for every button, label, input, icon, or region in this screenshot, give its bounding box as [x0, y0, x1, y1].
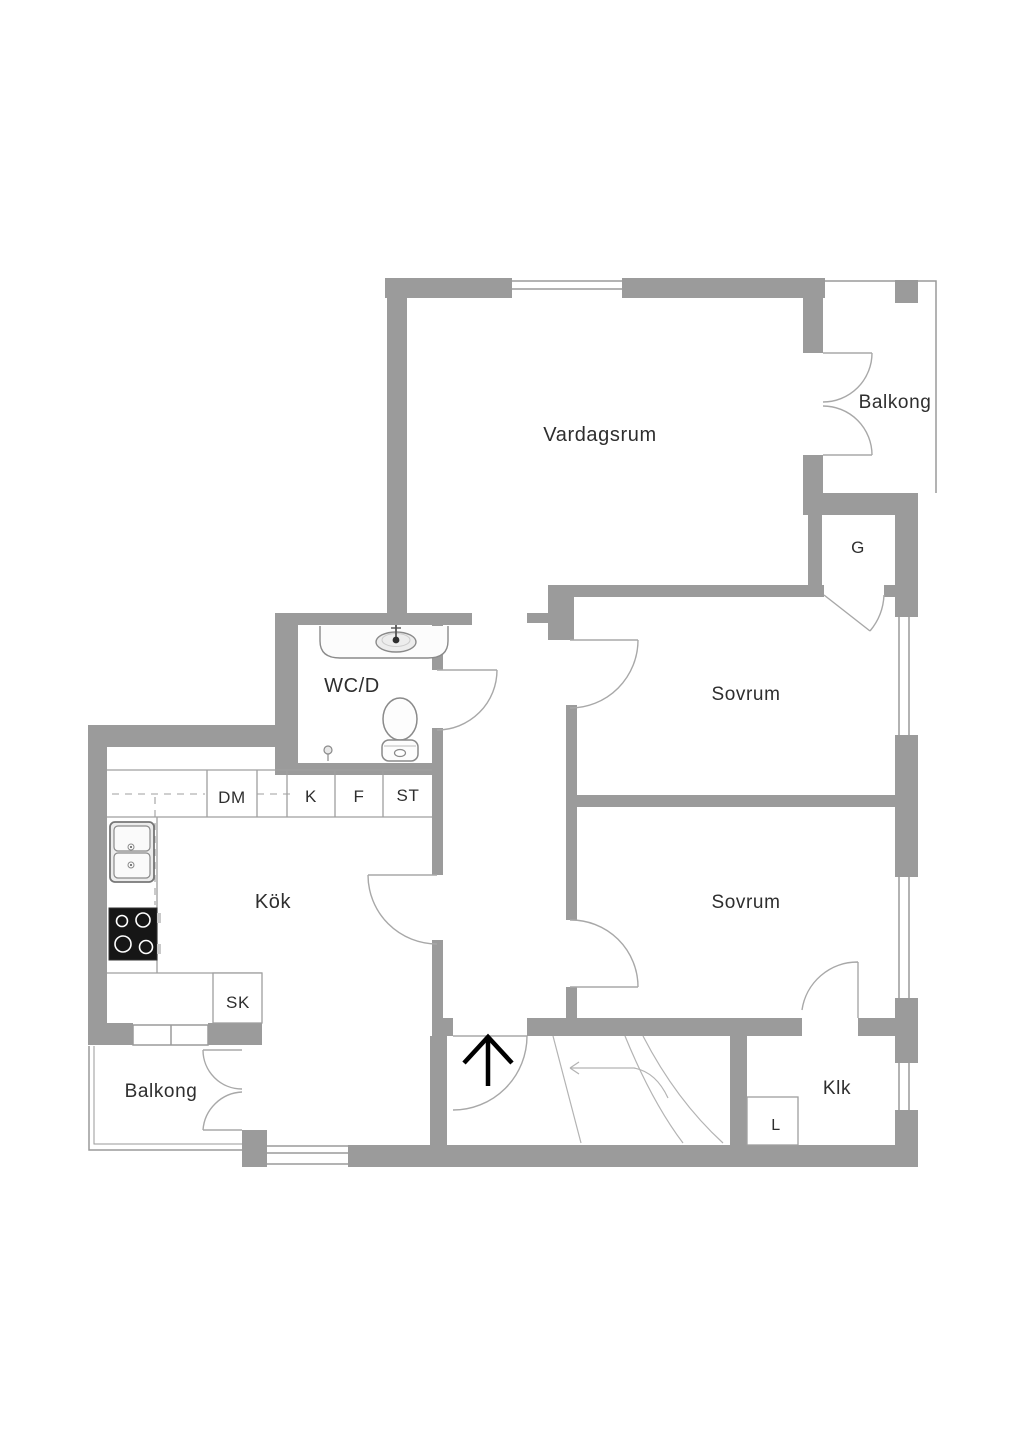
label-closet-l: L — [771, 1117, 781, 1134]
door-kitchen-balcony — [203, 1050, 242, 1130]
doors — [203, 353, 884, 1130]
label-unit-k: K — [305, 787, 317, 806]
label-living-room: Vardagsrum — [543, 424, 656, 446]
stove-handle — [157, 944, 161, 954]
stove-icon — [109, 908, 161, 960]
door-closet-g — [824, 595, 884, 631]
wall-segment — [566, 705, 577, 920]
wall-segment — [432, 1018, 453, 1036]
wall-segment — [432, 763, 443, 875]
wall-segment — [242, 1145, 267, 1167]
label-bedroom-1: Sovrum — [711, 684, 780, 705]
door-bathroom — [437, 670, 497, 730]
label-bedroom-2: Sovrum — [711, 892, 780, 913]
wall-segment — [730, 1036, 747, 1145]
wall-segment — [895, 515, 918, 617]
label-walk-in-closet: Klk — [823, 1078, 851, 1099]
wall-segment — [548, 585, 824, 597]
wall-segment — [107, 1023, 133, 1045]
walls — [88, 278, 918, 1167]
wall-segment — [895, 1110, 918, 1145]
wall-segment — [577, 795, 895, 807]
door-kitchen — [368, 875, 437, 944]
floor-plan-page: Vardagsrum Balkong G Sovrum WC/D DM K F … — [0, 0, 1024, 1449]
wall-segment — [803, 455, 823, 495]
wall-segment — [527, 1018, 802, 1036]
label-balcony-bottom: Balkong — [125, 1081, 198, 1102]
label-kitchen: Kök — [255, 891, 292, 913]
wall-segment — [348, 1145, 918, 1167]
wall-segment — [858, 1018, 895, 1036]
label-unit-st: ST — [397, 786, 420, 805]
window — [267, 1145, 348, 1165]
stove-handle — [157, 913, 161, 923]
bathroom-sink-icon — [320, 625, 448, 658]
window — [895, 1063, 918, 1110]
toilet-icon — [382, 698, 418, 761]
wall-segment — [566, 987, 577, 1018]
wall-segment — [88, 725, 280, 747]
floor-drain-icon — [324, 746, 332, 761]
wall-segment — [275, 613, 472, 625]
kitchen-sink-icon — [110, 822, 154, 882]
window — [512, 278, 622, 298]
label-unit-f: F — [354, 787, 365, 806]
floor-plan-drawing: Vardagsrum Balkong G Sovrum WC/D DM K F … — [0, 0, 1024, 1449]
wall-segment — [527, 613, 548, 623]
wall-segment — [432, 728, 443, 763]
door-bedroom-1 — [570, 640, 638, 708]
wall-segment — [208, 1023, 262, 1045]
staircase-icon — [553, 1036, 723, 1143]
label-closet-sk: SK — [226, 993, 250, 1012]
window — [895, 617, 918, 735]
wall-segment — [430, 1036, 447, 1145]
wall-segment — [387, 278, 407, 625]
wall-segment — [803, 298, 823, 353]
wall-segment — [88, 725, 107, 1045]
door-walk-in-closet — [802, 962, 858, 1018]
balcony-top-railing — [823, 281, 936, 493]
door-bedroom-2 — [570, 920, 638, 987]
wall-segment — [275, 613, 298, 775]
kitchen-counters — [107, 770, 798, 1145]
window — [133, 1025, 208, 1045]
wall-segment — [298, 763, 443, 775]
label-bathroom: WC/D — [324, 675, 380, 697]
stairs-up-arrow-icon — [464, 1037, 512, 1086]
label-closet-g: G — [851, 538, 865, 557]
wall-segment — [622, 278, 825, 298]
wall-segment — [895, 280, 918, 303]
wall-segment — [808, 515, 822, 597]
window — [895, 877, 918, 998]
wall-segment — [432, 940, 443, 1020]
wall-segment — [895, 735, 918, 877]
wall-segment — [895, 998, 918, 1063]
label-balcony-top: Balkong — [859, 392, 932, 413]
label-unit-dm: DM — [218, 788, 246, 807]
wall-segment — [803, 493, 918, 515]
